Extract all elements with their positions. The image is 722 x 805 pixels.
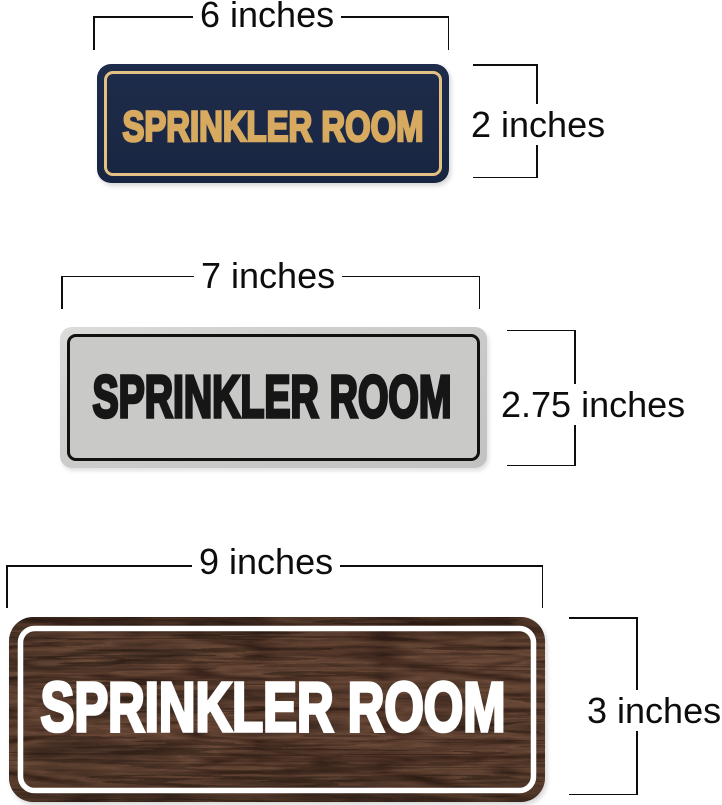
svg-text:SPRINKLER ROOM: SPRINKLER ROOM bbox=[123, 103, 424, 151]
svg-text:SPRINKLER ROOM: SPRINKLER ROOM bbox=[93, 364, 452, 430]
svg-text:SPRINKLER ROOM: SPRINKLER ROOM bbox=[41, 668, 506, 746]
